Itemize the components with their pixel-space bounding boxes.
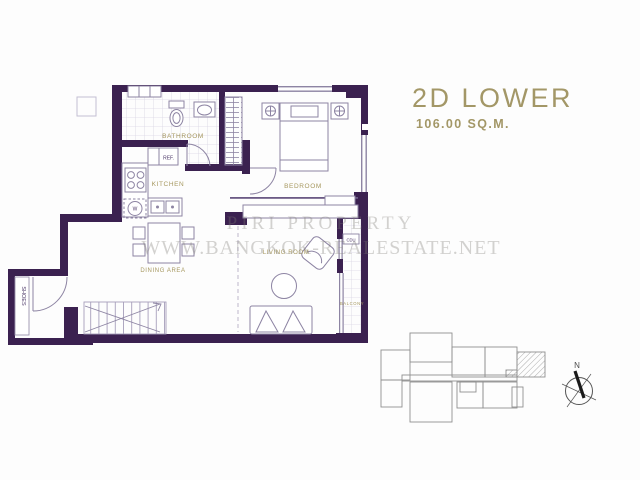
north-label: N (574, 361, 580, 370)
wall-segment (64, 307, 78, 338)
entry-door (33, 277, 67, 311)
compass: N (562, 361, 596, 407)
wall-segment (74, 334, 368, 343)
tv-icon (325, 196, 355, 205)
wall-segment (8, 338, 93, 345)
wall-segment (60, 214, 122, 222)
coffee-table (272, 274, 297, 299)
wall-segment (60, 214, 68, 276)
balcony-label: BALCONY (340, 301, 364, 306)
window-top (278, 86, 332, 87)
wall-segment (242, 140, 250, 174)
dining-chair (133, 244, 145, 256)
wall-segment (112, 85, 122, 221)
window-right (366, 135, 367, 192)
wall-segment (8, 269, 65, 276)
kitchen-label: KITCHEN (152, 181, 185, 188)
stairs (84, 302, 166, 334)
dining-chair (182, 227, 194, 239)
nightstand-lamp-icon (331, 103, 348, 119)
wall-segment (8, 269, 15, 345)
floorplan-page: CDU SHOES BATHROOM KITCHEN BEDROOM DININ… (0, 0, 640, 480)
keyplan (381, 333, 545, 422)
shoes-label: SHOES (20, 286, 26, 306)
keyplan-unit-highlight (506, 370, 517, 377)
shoes-closet: SHOES (15, 277, 29, 335)
wall-segment (219, 85, 225, 171)
dining-chair (133, 227, 145, 239)
dining-table (148, 223, 180, 263)
dining-area-label: DINING AREA (140, 268, 185, 274)
plan-title-block: 2D LOWER 106.00 SQ.M. (412, 83, 573, 131)
wall-segment (337, 259, 343, 273)
plan-area: 106.00 SQ.M. (416, 117, 573, 131)
washer-label: W (133, 207, 138, 213)
outside-ledge (77, 97, 96, 116)
bathroom-label: BATHROOM (162, 133, 204, 140)
bed (280, 103, 328, 171)
kitchen-sink-icon (148, 198, 182, 216)
dining-chair (182, 244, 194, 256)
tv-console (243, 205, 358, 218)
window-top (278, 91, 332, 92)
balcony-sliding-door (342, 239, 343, 259)
bedroom-furniture (262, 103, 348, 171)
living-room-label: LIVING ROOM (263, 250, 310, 256)
dining-set (133, 223, 194, 263)
nightstand-lamp-icon (262, 103, 279, 119)
window-right (361, 135, 362, 192)
plan-title: 2D LOWER (412, 83, 573, 114)
keyplan-unit-highlight (517, 352, 545, 377)
sink-icon (194, 102, 215, 117)
bedroom-label: BEDROOM (284, 183, 322, 190)
wall-segment (112, 140, 188, 147)
balcony-sliding-door (339, 239, 340, 259)
sofa (250, 306, 312, 334)
stove-icon (125, 168, 146, 192)
bedroom-door (250, 168, 276, 194)
toilet-icon (169, 101, 184, 127)
wall-segment (337, 218, 343, 239)
condenser-unit: CDU (343, 234, 359, 244)
vent-shelf (128, 86, 161, 97)
refrigerator-label: REF. (163, 156, 174, 162)
wardrobe (225, 97, 242, 165)
wall-inset (362, 124, 368, 130)
floorplan-svg: CDU SHOES BATHROOM KITCHEN BEDROOM DININ… (0, 0, 640, 480)
wall-segment (361, 218, 368, 335)
condenser-label: CDU (346, 238, 355, 243)
